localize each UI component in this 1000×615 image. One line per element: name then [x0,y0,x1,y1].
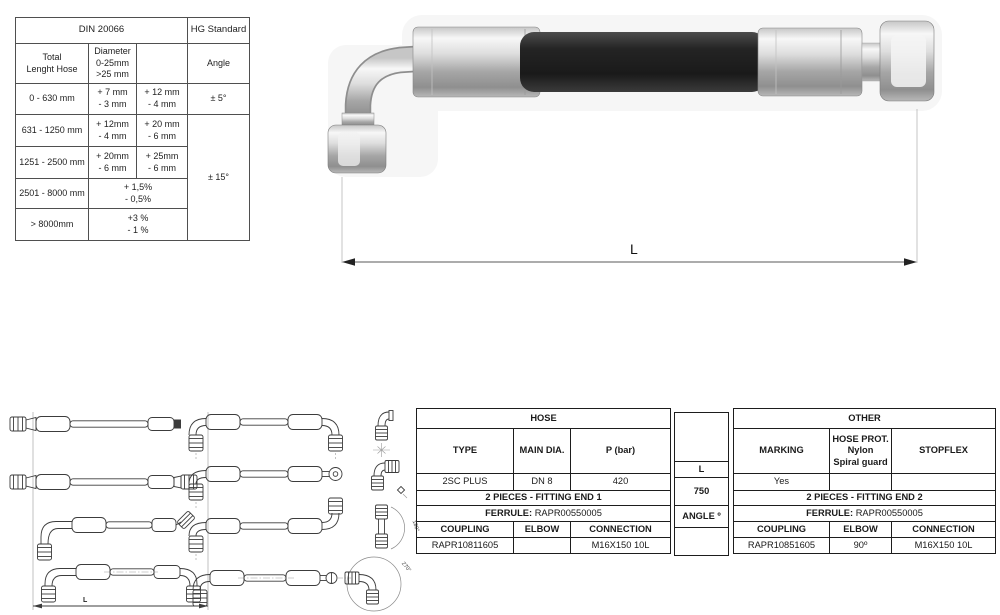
coupling-value: RAPR10811605 [417,538,514,554]
arrow-left-icon [342,258,355,266]
length-header: L [675,462,729,478]
hg-standard-title: HG Standard [188,18,250,44]
elbow-header: ELBOW [830,522,892,538]
spec-table-dims: L 750 ANGLE º [674,412,729,556]
fitting-end-2-title: 2 PIECES - FITTING END 2 [734,491,996,506]
hose-section-title: HOSE [417,409,671,429]
spec-table-other: OTHER MARKING HOSE PROT. Nylon Spiral gu… [733,408,996,554]
range-cell: 0 - 630 mm [16,84,89,115]
hose-drawing-double-elbow [42,565,201,603]
range-cell: 631 - 1250 mm [16,115,89,147]
range-cell: 1251 - 2500 mm [16,147,89,179]
type-header: TYPE [417,429,514,474]
hose-prot-header: HOSE PROT. Nylon Spiral guard [830,429,892,474]
coupling-header: COUPLING [734,522,830,538]
orientation-diagram-0 [373,411,393,458]
hose-drawing-elbow-banjo [189,467,342,510]
angle-value [675,528,729,556]
connection-value: M16X150 10L [571,538,671,554]
type-value: 2SC PLUS [417,474,514,491]
tolerance-cell: + 20 mm - 6 mm [137,115,188,147]
tolerance-cell: + 25mm - 6 mm [137,147,188,179]
orientation-diagram-180: 180° [376,505,420,549]
diameter-header-2 [137,44,188,84]
hose-drawing-elbow-45 [38,511,196,560]
orientation-diagram-90 [372,461,408,499]
technical-drawings: L [0,400,445,615]
dims-blank-top [675,413,729,462]
fitting-end-1-title: 2 PIECES - FITTING END 1 [417,491,671,506]
ferrule-row-2: FERRULE: RAPR00550005 [734,506,996,522]
total-length-header: Total Lenght Hose [16,44,89,84]
coupling-value: RAPR10851605 [734,538,830,554]
angle-small-cell: ± 5° [188,84,250,115]
tolerance-cell: + 12mm - 4 mm [89,115,137,147]
ferrule-label: FERRULE: [485,508,532,518]
drawing-dimension-l: L [33,412,208,610]
tolerance-cell: +3 % - 1 % [89,209,188,241]
hose-drawing-elbow-up [189,498,343,561]
pressure-value: 420 [571,474,671,491]
tolerance-cell: + 7 mm - 3 mm [89,84,137,115]
drawing-dimension-label: L [83,597,88,604]
ferrule-row-1: FERRULE: RAPR00550005 [417,506,671,522]
stopflex-header: STOPFLEX [892,429,996,474]
orientation-diagram-270: 270° [345,557,412,611]
dimension-label: L [630,241,638,257]
hose-drawing-elbow-both-ends [189,415,343,461]
angle-label-270: 270° [400,561,412,574]
right-nut [880,21,934,101]
diameter-header: Diameter 0-25mm >25 mm [89,44,137,84]
elbow-value: 90º [830,538,892,554]
rubber-hose [520,32,766,92]
length-value: 750 [675,478,729,506]
marking-header: MARKING [734,429,830,474]
din-standard-title: DIN 20066 [16,18,188,44]
connection-value: M16X150 10L [892,538,996,554]
hose-drawing-straight-cap [10,417,181,432]
spec-table-hose: HOSE TYPE MAIN DIA. P (bar) 2SC PLUS DN … [416,408,671,554]
connection-header: CONNECTION [892,522,996,538]
tolerance-table: DIN 20066 HG Standard Total Lenght Hose … [15,17,250,241]
ferrule-label: FERRULE: [806,508,853,518]
range-cell: 2501 - 8000 mm [16,179,89,209]
arrow-right-icon [904,258,917,266]
fitting-neck [862,43,882,81]
hose-drawing-straight-nut [10,475,197,490]
tolerance-cell: + 12 mm - 4 mm [137,84,188,115]
elbow-value [514,538,571,554]
other-section-title: OTHER [734,409,996,429]
coupling-header: COUPLING [417,522,514,538]
connection-header: CONNECTION [571,522,671,538]
tolerance-cell: + 1,5% - 0,5% [89,179,188,209]
marking-value: Yes [734,474,830,491]
angle-large-cell: ± 15° [188,115,250,241]
angle-header: ANGLE º [675,506,729,528]
main-dia-value: DN 8 [514,474,571,491]
ferrule-value: RAPR00550005 [856,508,923,518]
elbow-header: ELBOW [514,522,571,538]
main-dia-header: MAIN DIA. [514,429,571,474]
tolerance-cell: + 20mm - 6 mm [89,147,137,179]
angle-header: Angle [188,44,250,84]
right-ferrule [758,28,862,96]
arrow-left-icon [33,604,42,609]
hose-prot-value [830,474,892,491]
ferrule-value: RAPR00550005 [535,508,602,518]
hose-drawing-elbow-ball [193,571,351,607]
datasheet-page: DIN 20066 HG Standard Total Lenght Hose … [0,0,1000,615]
pressure-header: P (bar) [571,429,671,474]
range-cell: > 8000mm [16,209,89,241]
stopflex-value [892,474,996,491]
hose-photo: L [320,5,960,275]
